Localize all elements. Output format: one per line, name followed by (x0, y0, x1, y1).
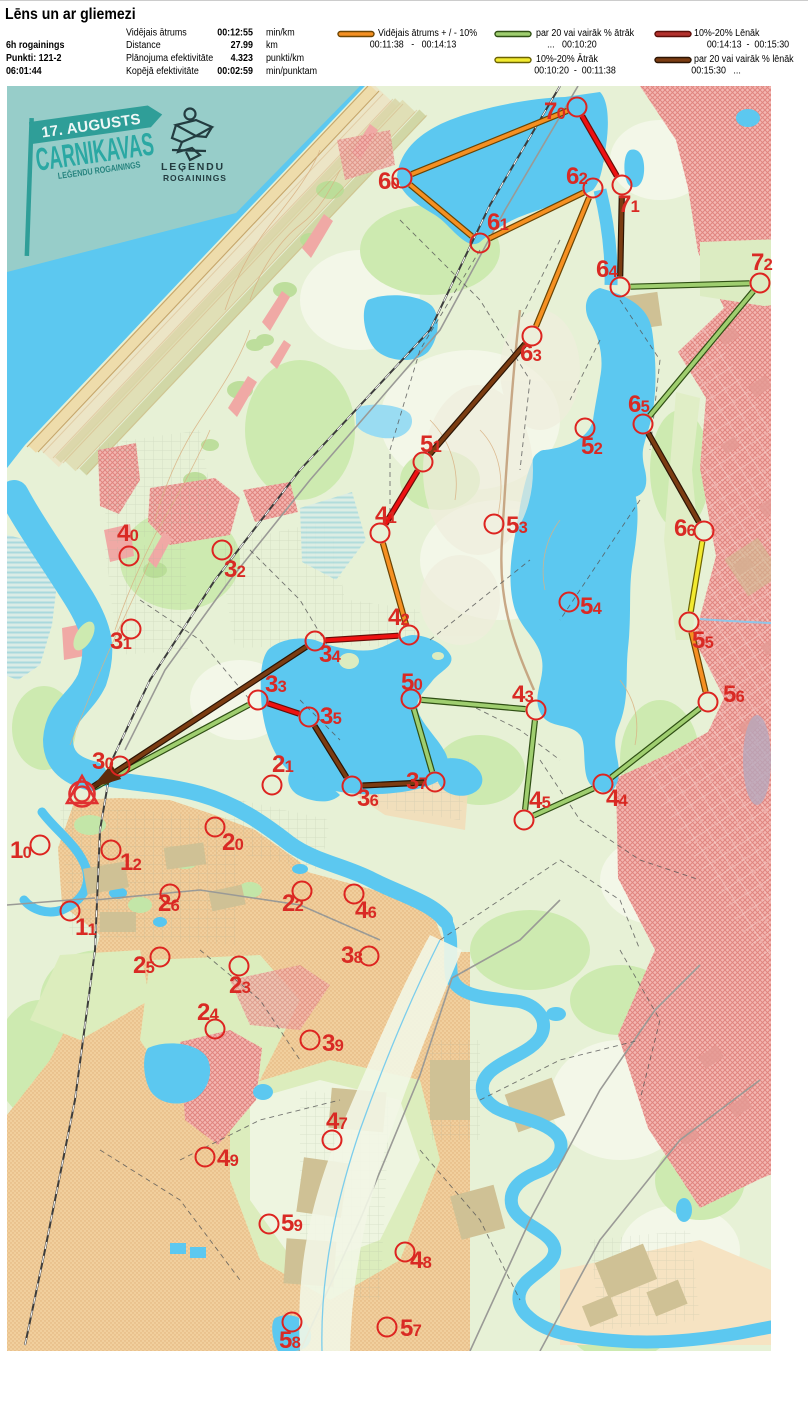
svg-text:par 20 vai vairāk % ātrāk: par 20 vai vairāk % ātrāk (536, 27, 634, 39)
svg-text:Vidējais ātrums: Vidējais ātrums (126, 27, 187, 39)
svg-text:punkti/km: punkti/km (266, 52, 304, 64)
svg-text:00:02:59: 00:02:59 (217, 65, 253, 77)
svg-text:Distance: Distance (126, 39, 161, 51)
svg-text:4.323: 4.323 (231, 52, 254, 64)
svg-text:par 20 vai vairāk % lēnāk: par 20 vai vairāk % lēnāk (694, 53, 794, 65)
svg-text:27.99: 27.99 (231, 39, 254, 51)
svg-text:06:01:44: 06:01:44 (6, 65, 42, 77)
svg-text:10%-20% Lēnāk: 10%-20% Lēnāk (694, 27, 760, 39)
svg-text:00:11:38 - 00:14:13: 00:11:38 - 00:14:13 (370, 39, 457, 51)
svg-text:Vidējais ātrums + / - 10%: Vidējais ātrums + / - 10% (378, 27, 478, 39)
svg-text:10%-20% Ātrāk: 10%-20% Ātrāk (536, 53, 598, 65)
svg-text:Lēns un ar gliemezi: Lēns un ar gliemezi (5, 5, 136, 23)
svg-text:ROGAININGS: ROGAININGS (163, 173, 227, 183)
svg-text:00:12:55: 00:12:55 (217, 27, 253, 39)
svg-text:Kopējā efektivitāte: Kopējā efektivitāte (126, 65, 199, 77)
svg-text:00:15:30 ...: 00:15:30 ... (691, 65, 741, 77)
svg-text:00:10:20 - 00:11:38: 00:10:20 - 00:11:38 (534, 65, 616, 77)
svg-text:... 00:10:20: ... 00:10:20 (547, 39, 597, 51)
svg-text:Punkti: 121-2: Punkti: 121-2 (6, 52, 62, 64)
svg-text:6h rogainings: 6h rogainings (6, 39, 65, 51)
svg-text:Plānojuma efektivitāte: Plānojuma efektivitāte (126, 52, 213, 64)
svg-text:LEĢENDU: LEĢENDU (161, 161, 225, 173)
svg-text:km: km (266, 39, 278, 51)
svg-text:min/punktam: min/punktam (266, 65, 317, 77)
svg-text:min/km: min/km (266, 27, 295, 39)
svg-text:00:14:13 - 00:15:30: 00:14:13 - 00:15:30 (707, 39, 790, 51)
